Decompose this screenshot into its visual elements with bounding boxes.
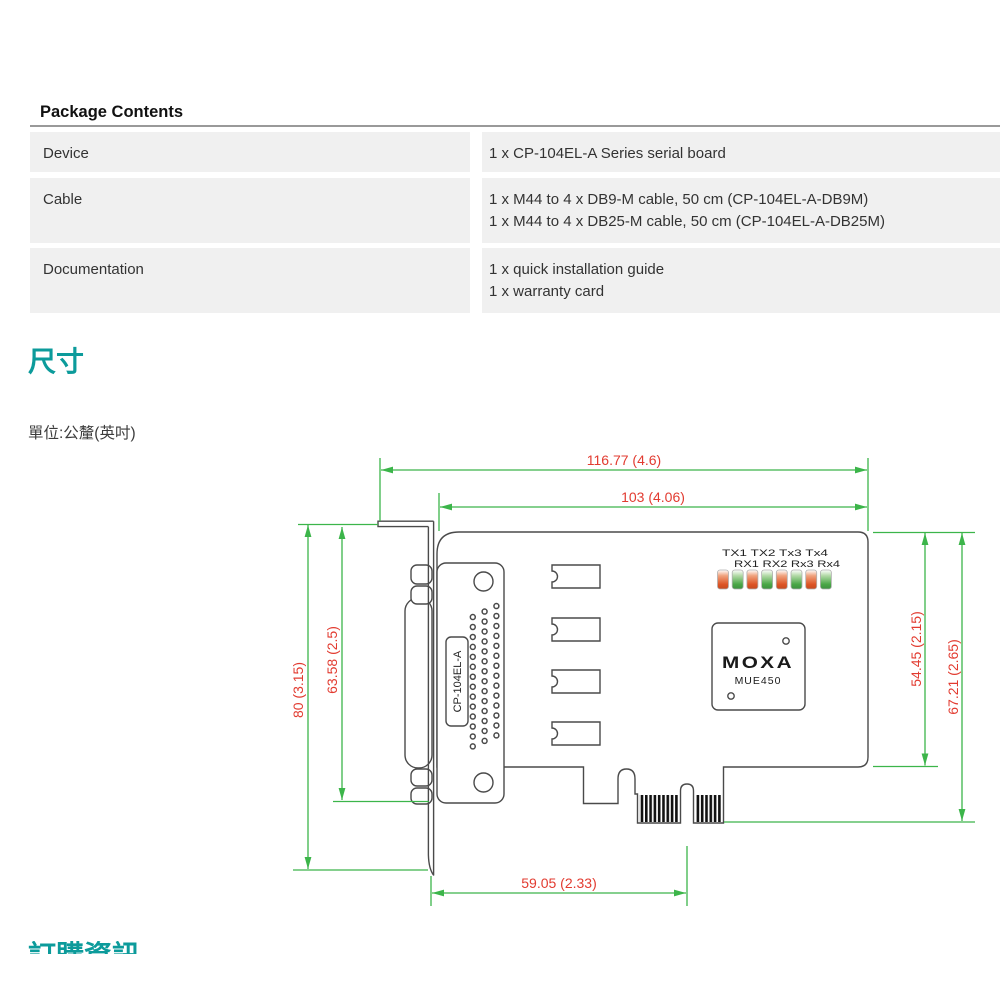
dim-connector-height: 63.58 (2.5) bbox=[324, 626, 340, 694]
led-red-icon bbox=[718, 570, 729, 589]
dim-bracket-to-pcie-key: 59.05 (2.33) bbox=[521, 875, 597, 891]
ic-chip bbox=[552, 565, 600, 588]
led-labels-rx: RX1 RX2 Rx3 Rx4 bbox=[734, 559, 840, 570]
led-green-icon bbox=[820, 570, 831, 589]
chip-pin1-mark bbox=[728, 693, 734, 699]
pcie-gold-fingers-right bbox=[696, 795, 722, 822]
chip-model-label: MUE450 bbox=[735, 675, 782, 687]
dim-board-width: 103 (4.06) bbox=[621, 489, 685, 505]
led-red-icon bbox=[776, 570, 787, 589]
led-red-icon bbox=[806, 570, 817, 589]
next-section-heading-clipped: 訂購資訊 bbox=[28, 941, 140, 954]
dim-board-height: 54.45 (2.15) bbox=[908, 611, 924, 687]
dim-bracket-height: 80 (3.15) bbox=[290, 662, 306, 718]
led-green-icon bbox=[791, 570, 802, 589]
led-labels-tx: TX1 TX2 Tx3 Tx4 bbox=[722, 548, 828, 559]
ic-chip bbox=[552, 722, 600, 745]
dim-overall-width: 116.77 (4.6) bbox=[587, 452, 661, 468]
ic-chip bbox=[552, 670, 600, 693]
ic-chip bbox=[552, 618, 600, 641]
dim-board-height-with-connector: 67.21 (2.65) bbox=[945, 639, 961, 715]
connector-label: CP-104EL-A bbox=[452, 650, 464, 712]
connector-screw-hole bbox=[474, 773, 493, 792]
chip-pin1-mark bbox=[783, 638, 789, 644]
datasheet-page: Package Contents Device 1 x CP-104EL-A S… bbox=[0, 0, 1000, 1000]
pcie-gold-fingers-left bbox=[639, 795, 679, 822]
led-green-icon bbox=[762, 570, 773, 589]
next-section-heading: 訂購資訊 bbox=[28, 941, 140, 954]
connector-screw-hole bbox=[474, 572, 493, 591]
chip-brand-logo: MOXA bbox=[722, 653, 794, 672]
dimension-diagram: CP-104EL-A TX1 TX2 Tx3 Tx4 RX1 RX2 Rx3 R… bbox=[0, 0, 1000, 1000]
led-red-icon bbox=[747, 570, 758, 589]
led-green-icon bbox=[732, 570, 743, 589]
